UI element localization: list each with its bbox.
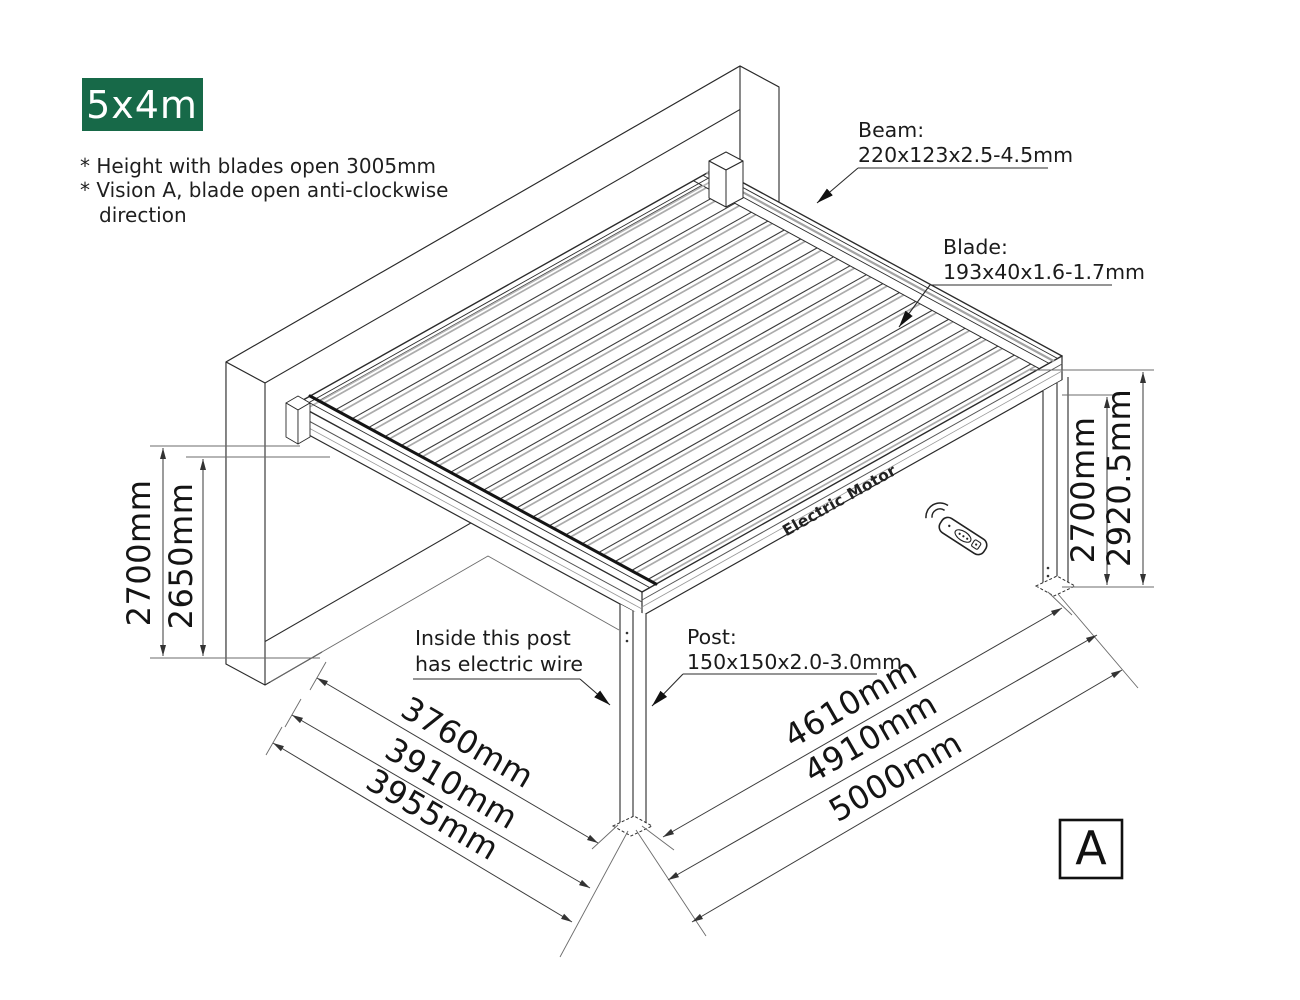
wall-left-end-face (226, 362, 265, 685)
wall-bracket (286, 396, 310, 444)
dim-label-right-inner: 2700mm (1064, 417, 1102, 564)
wall-bracket-right (298, 403, 310, 444)
size-badge: 5x4m (82, 78, 203, 131)
front-post-screw (626, 640, 629, 643)
corner-cap (709, 152, 743, 207)
dim-label-left-inner: 2650mm (162, 483, 200, 630)
blade-callout-title: Blade: (943, 235, 1008, 259)
front-post-screw (626, 632, 629, 635)
dim-label-right-outer: 2920.5mm (1100, 389, 1138, 567)
wire-callout-line2: has electric wire (415, 652, 583, 676)
note-vision: * Vision A, blade open anti-clockwise (80, 178, 449, 202)
wire-callout-line1: Inside this post (415, 626, 571, 650)
right-post-screw (1047, 567, 1050, 570)
dim-label-left-outer: 2700mm (120, 480, 158, 627)
post-callout-spec: 150x150x2.0-3.0mm (687, 650, 902, 674)
diagram-canvas: Electric Motor (0, 0, 1300, 1000)
view-marker: A (1060, 820, 1122, 878)
right-post-screw (1047, 575, 1050, 578)
post-callout-title: Post: (687, 625, 737, 649)
beam-callout-title: Beam: (858, 118, 924, 142)
wall-bracket-left (286, 403, 298, 444)
beam-callout-spec: 220x123x2.5-4.5mm (858, 143, 1073, 167)
pergola-spec-diagram: Electric Motor (0, 0, 1300, 1000)
view-marker-label: A (1075, 821, 1107, 875)
blade-callout-spec: 193x40x1.6-1.7mm (943, 260, 1145, 284)
size-badge-label: 5x4m (86, 83, 198, 127)
note-vision-cont: direction (99, 203, 187, 227)
note-height: * Height with blades open 3005mm (80, 154, 436, 178)
